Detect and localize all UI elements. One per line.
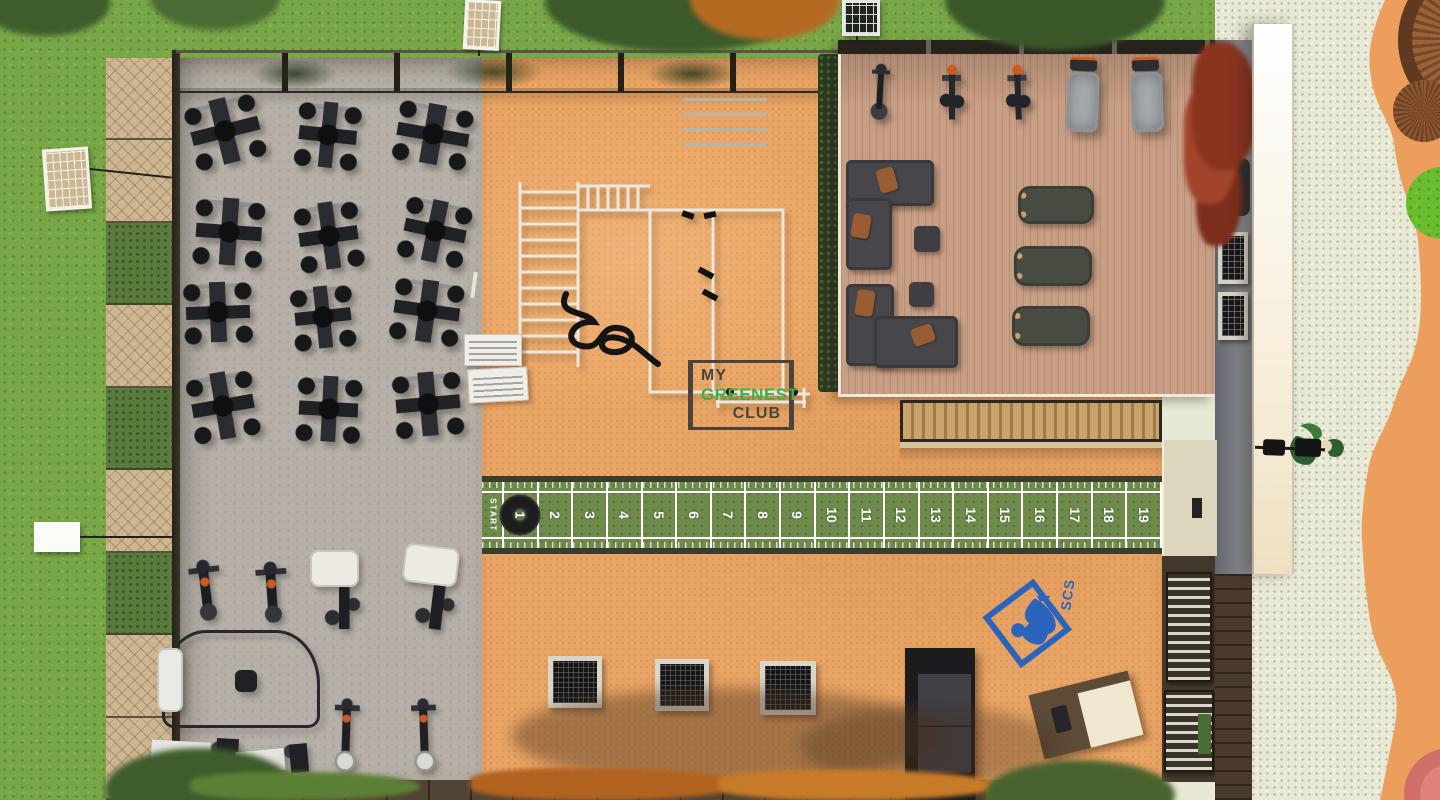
track-meter-10: 10: [816, 482, 851, 548]
track-meter-number: 12: [893, 507, 909, 523]
solar-panel: [463, 0, 502, 51]
track-meter-number: 18: [1101, 507, 1117, 523]
dumbbell-weight: [1295, 438, 1322, 457]
track-meter-15: 15: [989, 482, 1024, 548]
autumn-foliage: [470, 768, 740, 800]
track-meter-number: 19: [1136, 507, 1152, 523]
track-meter-5: 5: [643, 482, 678, 548]
track-meter-number: 7: [720, 511, 736, 519]
track-meter-number: 8: [755, 511, 771, 519]
track-meter-2: 2: [539, 482, 574, 548]
green-wall-hedge: [818, 54, 840, 392]
track-meter-4: 4: [608, 482, 643, 548]
deck-elliptical: [1001, 61, 1035, 128]
paver-segment: [106, 140, 176, 222]
track-meter-8: 8: [746, 482, 781, 548]
strength-machine: [287, 191, 371, 281]
club-logo-line3: CLUB: [701, 405, 781, 423]
paver-segment: [106, 305, 176, 387]
paver-segment: [106, 470, 176, 552]
track-meter-3: 3: [573, 482, 608, 548]
deck-spin-bike: [864, 61, 895, 122]
track-meter-number: 14: [962, 507, 978, 523]
ac-unit: [467, 366, 529, 403]
spin-bike: [403, 693, 446, 776]
track-meter-number: 5: [651, 511, 667, 519]
track-meter-19: 19: [1127, 482, 1162, 548]
club-logo-line1: MY: [701, 367, 781, 385]
roof-ridge: [1252, 24, 1294, 574]
strength-machine: [185, 189, 272, 275]
track-meter-9: 9: [781, 482, 816, 548]
deck-elliptical: [936, 62, 968, 128]
track-meter-number: 2: [547, 511, 563, 519]
track-meter-6: 6: [677, 482, 712, 548]
gym-aerial-plan: START 12345678910111213141516171819: [0, 0, 1440, 800]
screen-shadow: [900, 448, 1162, 462]
track-meter-7: 7: [712, 482, 747, 548]
red-shrub: [1192, 42, 1258, 170]
track-meter-1: 1: [504, 482, 539, 548]
solar-panel-lamp: [842, 0, 880, 36]
pad-marker: [1192, 498, 1202, 518]
strength-machine: [178, 360, 269, 452]
track-meter-number: 6: [685, 511, 701, 519]
lounge-sofa: [846, 160, 938, 272]
track-meter-16: 16: [1023, 482, 1058, 548]
sun-lounger: [1018, 186, 1094, 224]
autumn-foliage: [718, 770, 998, 800]
recumbent-machine: [306, 548, 372, 642]
scs-logo-text: SCS: [1058, 578, 1078, 612]
louver-rack: [1166, 572, 1212, 682]
track-meter-11: 11: [850, 482, 885, 548]
strength-machine: [382, 91, 483, 178]
roof-grille: [1218, 232, 1248, 284]
exercise-bike: [180, 554, 232, 631]
track-meter-18: 18: [1093, 482, 1128, 548]
planter-strip: [1198, 714, 1211, 754]
hedge-segment: [106, 388, 176, 470]
sprint-track: START 12345678910111213141516171819: [482, 476, 1162, 554]
sun-lounger: [1014, 246, 1092, 286]
track-meter-number: 13: [928, 507, 944, 523]
deck-treadmill: [1125, 55, 1170, 136]
scs-logo-figure-icon: [999, 590, 1067, 662]
glass-fence: [176, 50, 838, 93]
track-meter-number: 15: [997, 507, 1013, 523]
track-meter-13: 13: [920, 482, 955, 548]
ottoman: [914, 226, 940, 252]
pergola-roof: [1215, 574, 1252, 800]
strength-machine: [290, 368, 368, 450]
scs-logo: SCS: [983, 563, 1080, 674]
sofa-pillow: [854, 289, 875, 317]
track-meter-number: 11: [859, 508, 875, 523]
track-meter-number: 9: [789, 511, 805, 519]
ac-unit: [464, 334, 522, 366]
track-meter-12: 12: [885, 482, 920, 548]
ground-sign: [34, 522, 80, 552]
dumbbell-set: [1255, 435, 1326, 461]
recumbent-machine: [390, 540, 475, 646]
track-meter-17: 17: [1058, 482, 1093, 548]
track-meter-number: 16: [1032, 507, 1048, 523]
track-start-label: START: [489, 495, 498, 535]
club-logo-line2: GREENEST: [701, 385, 781, 405]
ottoman: [909, 282, 934, 307]
outdoor-bench-bars: [683, 96, 767, 146]
strength-machine: [381, 269, 473, 354]
roof-grille: [1218, 292, 1248, 340]
slat-screen: [900, 400, 1162, 442]
battle-rope: [556, 282, 676, 372]
track-meter-number: 1: [513, 511, 528, 518]
solar-panel: [42, 146, 92, 211]
hedge-segment: [106, 553, 176, 635]
sun-lounger: [1012, 306, 1090, 346]
paver-segment: [106, 58, 176, 140]
track-end-pad: [1162, 440, 1217, 556]
deck-treadmill: [1061, 55, 1106, 136]
lounge-sofa: [846, 284, 960, 370]
dumbbell-weight: [1263, 439, 1286, 456]
strength-machine: [288, 92, 368, 177]
track-start-zone: START: [482, 482, 504, 548]
track-meter-number: 3: [582, 511, 598, 519]
track-meter-number: 10: [824, 507, 840, 523]
exercise-bike: [248, 557, 297, 632]
track-meter-14: 14: [954, 482, 989, 548]
bottom-foliage: [190, 772, 420, 800]
strength-machine: [177, 275, 259, 350]
strength-machine: [284, 277, 361, 358]
rail-trainer: [162, 630, 320, 728]
grass-left: [0, 0, 118, 800]
spin-bike: [325, 693, 368, 776]
track-meter-number: 17: [1066, 507, 1082, 523]
lamp-arm: [78, 536, 172, 538]
sprint-track-cells: 12345678910111213141516171819: [504, 482, 1162, 548]
track-meter-number: 4: [616, 511, 632, 519]
start-tire: 1: [502, 497, 539, 534]
club-logo: MY GREENEST CLUB: [688, 360, 794, 430]
strength-machine: [385, 363, 471, 446]
strength-machine: [389, 187, 481, 276]
hedge-segment: [106, 223, 176, 305]
